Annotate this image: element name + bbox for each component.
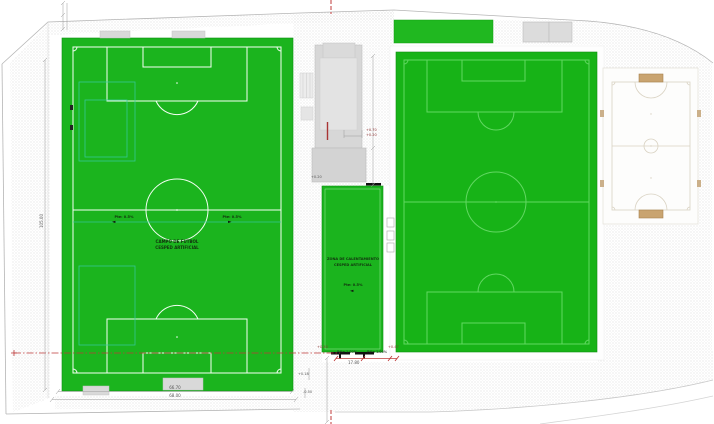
slope-note-2: Pdte 1.00% [367, 351, 387, 355]
site-plan-canvas: CAMPO DE FUTBOL CESPED ARTIFICIAL Pte: 0… [0, 0, 714, 424]
level-corridor-west: +0.20 [317, 346, 328, 350]
dim-corridor-label: 17.80 [348, 361, 359, 365]
level-building-side: +0.20 [311, 176, 322, 180]
north-gray-platforms [523, 22, 572, 42]
main-field-slope-right-label: Pte: 0.5% [214, 216, 250, 220]
dim-width-inner-label: 66.70 [145, 386, 205, 390]
slope-arrow-west-icon: ◄ [112, 221, 115, 226]
main-field-label-line1: CAMPO DE FUTBOL [137, 240, 217, 244]
benches [387, 218, 394, 252]
warmup-field-slope-label: Pte: 0.5% [335, 284, 371, 288]
secondary-football-field [387, 46, 604, 360]
level-plaza-b: -0.50 [303, 391, 312, 395]
slope-arrow-warmup-icon: ◄ [350, 290, 353, 295]
main-field-label-line2: CESPED ARTIFICIAL [137, 246, 217, 250]
futsal-court [600, 68, 701, 224]
dim-width-outer-label: 68.00 [145, 394, 205, 398]
north-green-strip [394, 20, 493, 43]
warmup-field-label-line2: CESPED ARTIFICIAL [323, 264, 383, 268]
level-building-upper: +0.70 [366, 129, 377, 133]
level-plaza-a: +0.18 [298, 373, 309, 377]
level-corridor-east: +0.47 [388, 346, 399, 350]
level-building-lower: +0.20 [366, 134, 377, 138]
slope-note-1: Pdte 1.00% [337, 351, 357, 355]
main-football-field [62, 31, 293, 395]
dim-length-label: 105.00 [40, 214, 44, 228]
main-field-slope-left-label: Pte: 0.5% [106, 216, 142, 220]
slope-arrow-east-icon: ► [228, 221, 231, 226]
warmup-field-label-line1: ZONA DE CALENTAMIENTO [323, 258, 383, 262]
warmup-field [322, 183, 383, 359]
building-stairs [300, 73, 313, 120]
